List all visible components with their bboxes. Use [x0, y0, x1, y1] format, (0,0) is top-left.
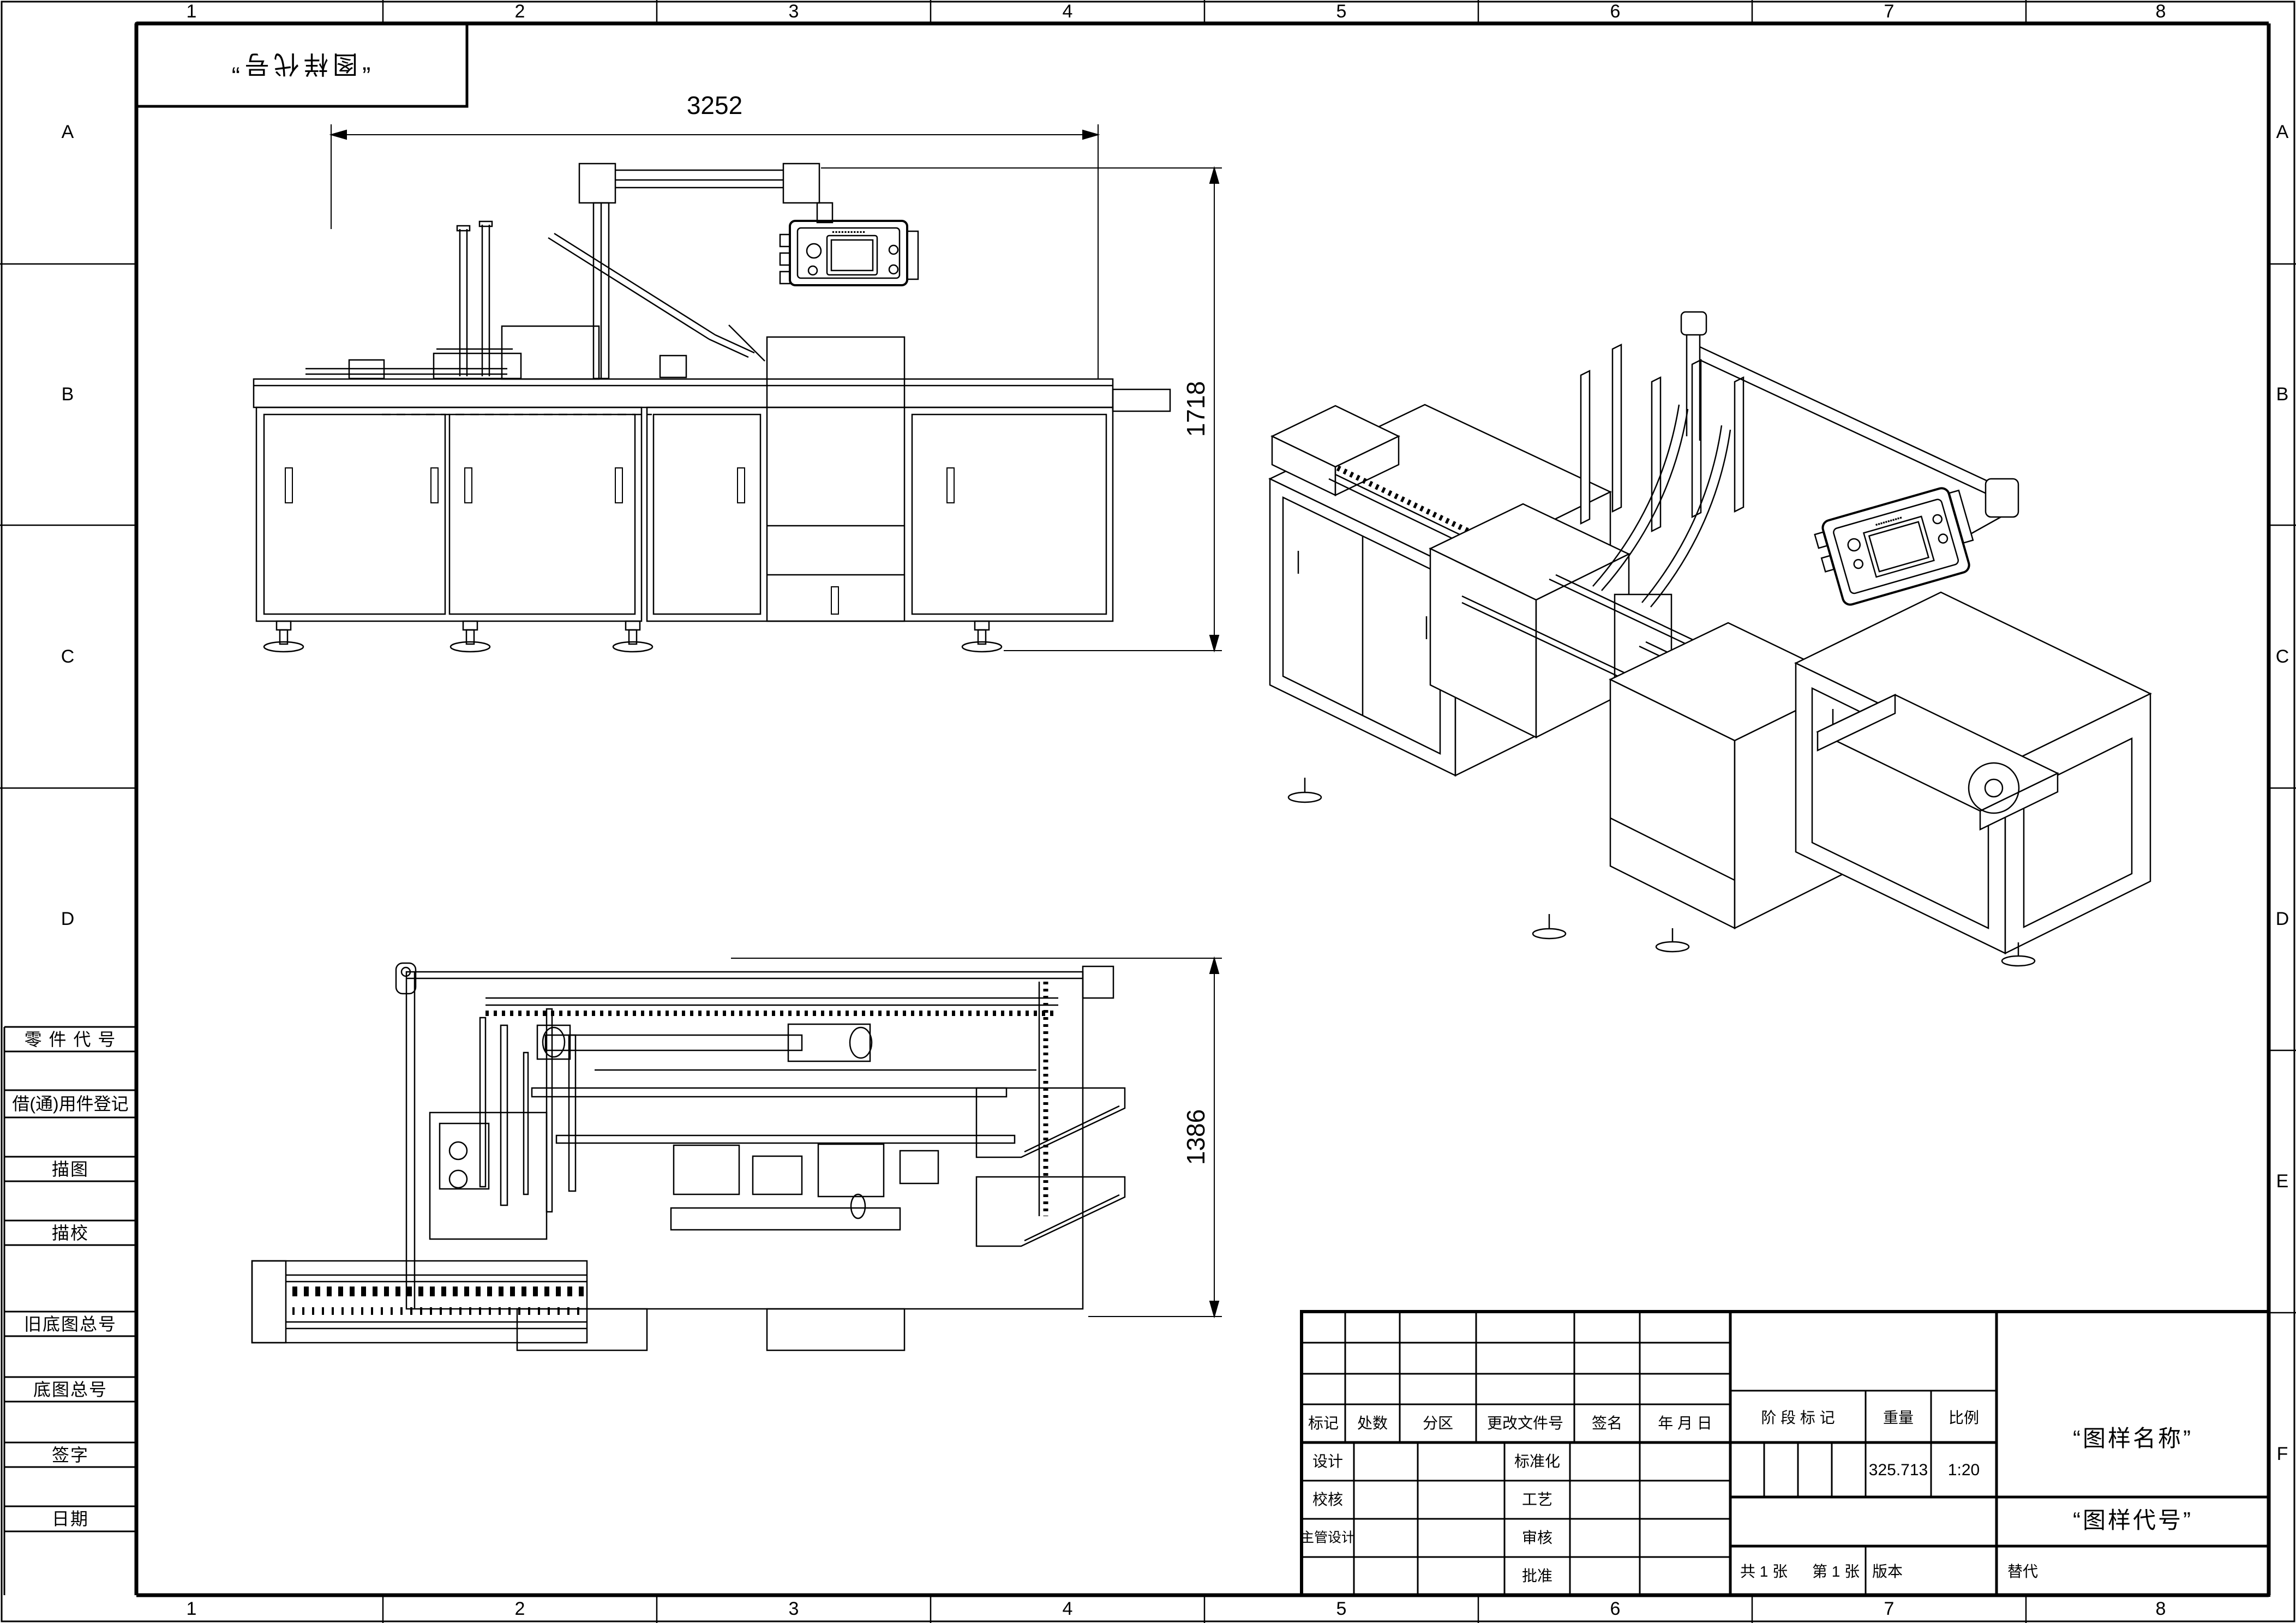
tb-weight-label: 重量 [1883, 1410, 1914, 1426]
zone-row-c-right: C [2276, 647, 2289, 666]
tb-col-mark: 标记 [1308, 1416, 1339, 1431]
iso-hmi-panel: ▪▪▪▪▪▪▪▪▪▪▪ [1812, 484, 1981, 609]
dim-depth-text: 1386 [1183, 1109, 1208, 1165]
zone-row-b-left: B [62, 385, 74, 404]
zone-col-8-bottom: 8 [2156, 1600, 2166, 1618]
zone-row-a-right: A [2276, 123, 2289, 141]
zone-col-5-bottom: 5 [1336, 1600, 1347, 1618]
tb-standard: 标准化 [1514, 1454, 1560, 1469]
front-view [254, 124, 1222, 652]
zone-col-7-bottom: 7 [1884, 1600, 1895, 1618]
tb-sheet-no: 第 1 张 [1812, 1564, 1860, 1579]
tb-design: 设计 [1312, 1454, 1343, 1469]
dim-width-text: 3252 [687, 93, 742, 118]
dim-1718 [821, 168, 1222, 651]
tb-sheet-count: 共 1 张 [1740, 1564, 1788, 1579]
margin-row-tracing: 描图 [52, 1161, 89, 1178]
drawing-linework: ▪▪▪▪▪▪▪▪▪▪▪ [0, 0, 2296, 1623]
tb-scale-value: 1:20 [1948, 1462, 1980, 1478]
zone-col-1-top: 1 [187, 2, 197, 21]
margin-row-borrow-register: 借(通)用件登记 [12, 1095, 128, 1113]
zone-col-2-bottom: 2 [515, 1600, 525, 1618]
zone-row-b-right: B [2276, 385, 2289, 404]
zone-row-f-right: F [2277, 1445, 2288, 1463]
dim-height-text: 1718 [1183, 381, 1208, 437]
zone-col-4-bottom: 4 [1063, 1600, 1073, 1618]
tb-weight-value: 325.713 [1869, 1462, 1928, 1478]
drawing-sheet: ▪▪▪▪▪▪▪▪▪▪▪ [0, 0, 2296, 1623]
zone-col-8-top: 8 [2156, 2, 2166, 21]
zone-col-2-top: 2 [515, 2, 525, 21]
zone-col-4-top: 4 [1063, 2, 1073, 21]
isometric-view: ▪▪▪▪▪▪▪▪▪▪▪ [1270, 312, 2150, 966]
zone-col-1-bottom: 1 [187, 1600, 197, 1618]
top-view [252, 958, 1222, 1350]
dim-3252 [331, 124, 1098, 379]
title-block-grid [1302, 1312, 2269, 1595]
zone-row-a-left: A [62, 123, 74, 141]
tb-process: 工艺 [1522, 1492, 1552, 1507]
tb-review: 审核 [1522, 1530, 1552, 1546]
tb-stage-label: 阶 段 标 记 [1761, 1410, 1835, 1426]
tb-col-date: 年 月 日 [1658, 1416, 1712, 1431]
margin-row-part-code: 零 件 代 号 [25, 1031, 117, 1048]
tb-col-change-doc: 更改文件号 [1487, 1416, 1563, 1431]
zone-col-3-bottom: 3 [789, 1600, 799, 1618]
margin-row-date: 日期 [52, 1510, 89, 1528]
zone-row-e-right: E [2276, 1172, 2289, 1191]
tb-check: 校核 [1312, 1492, 1343, 1507]
tb-col-count: 处数 [1357, 1416, 1388, 1431]
tb-drawing-code: “图样代号” [2073, 1509, 2193, 1532]
margin-row-old-master-no: 旧底图总号 [24, 1315, 117, 1333]
tb-col-zone: 分区 [1423, 1416, 1453, 1431]
margin-row-trace-check: 描校 [52, 1224, 89, 1242]
tb-scale-label: 比例 [1949, 1410, 1979, 1426]
zone-col-3-top: 3 [789, 2, 799, 21]
stamp-code-text: “图样代号” [227, 52, 371, 77]
zone-row-c-left: C [61, 647, 75, 666]
zone-col-5-top: 5 [1336, 2, 1347, 21]
zone-row-d-left: D [61, 910, 75, 928]
tb-version: 版本 [1872, 1564, 1903, 1579]
zone-row-d-right: D [2276, 910, 2289, 928]
zone-col-6-top: 6 [1610, 2, 1621, 21]
zone-col-7-top: 7 [1884, 2, 1895, 21]
tb-chief-design: 主管设计 [1300, 1531, 1355, 1545]
margin-row-signature: 签字 [52, 1446, 89, 1464]
tb-col-sign: 签名 [1592, 1416, 1622, 1431]
margin-row-master-no: 底图总号 [33, 1381, 107, 1398]
tb-replace: 替代 [2007, 1564, 2038, 1579]
tb-approve: 批准 [1522, 1568, 1552, 1584]
hmi-brand-text: ▪▪▪▪▪▪▪▪▪▪▪ [832, 229, 866, 236]
zone-col-6-bottom: 6 [1610, 1600, 1621, 1618]
tb-drawing-name: “图样名称” [2073, 1427, 2193, 1450]
